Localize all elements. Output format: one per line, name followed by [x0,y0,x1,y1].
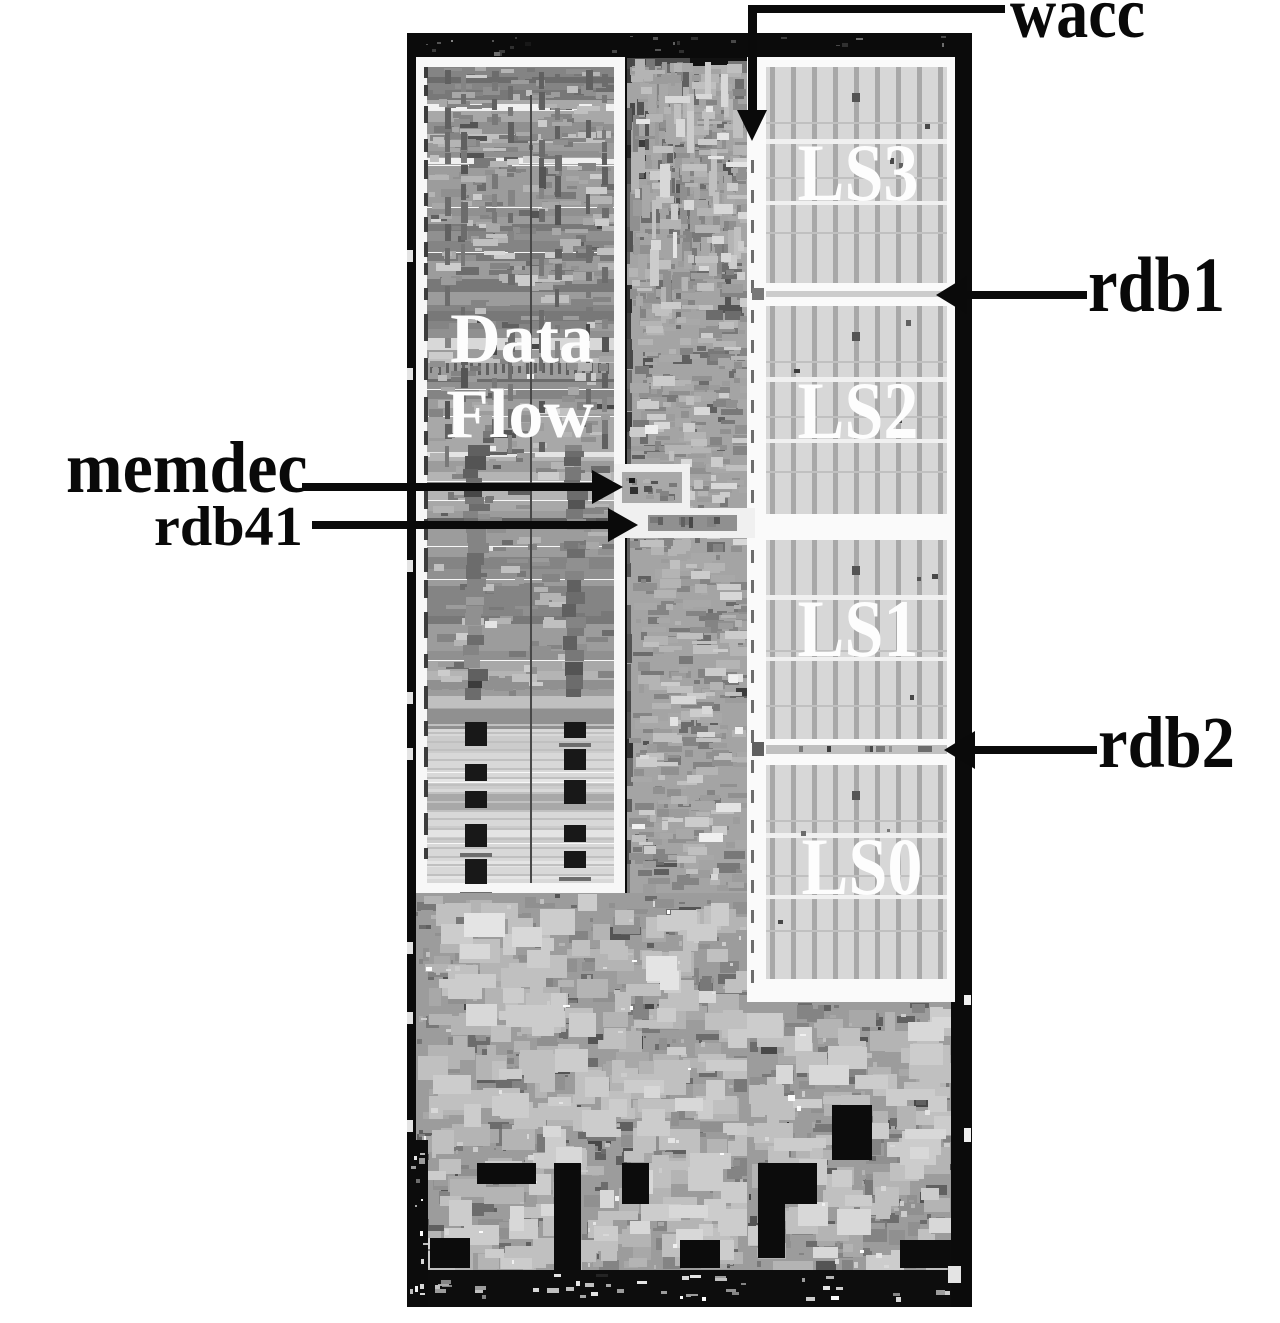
svg-text:rdb2: rdb2 [1098,703,1235,783]
svg-text:rdb1: rdb1 [1088,241,1225,328]
svg-text:rdb41: rdb41 [154,496,303,558]
svg-text:wacc: wacc [1010,0,1145,53]
svg-text:Data: Data [450,299,594,378]
svg-text:Flow: Flow [446,376,594,453]
svg-text:LS2: LS2 [797,366,918,456]
svg-text:LS3: LS3 [797,128,918,218]
svg-text:LS1: LS1 [797,584,918,674]
svg-text:LS0: LS0 [801,822,922,912]
